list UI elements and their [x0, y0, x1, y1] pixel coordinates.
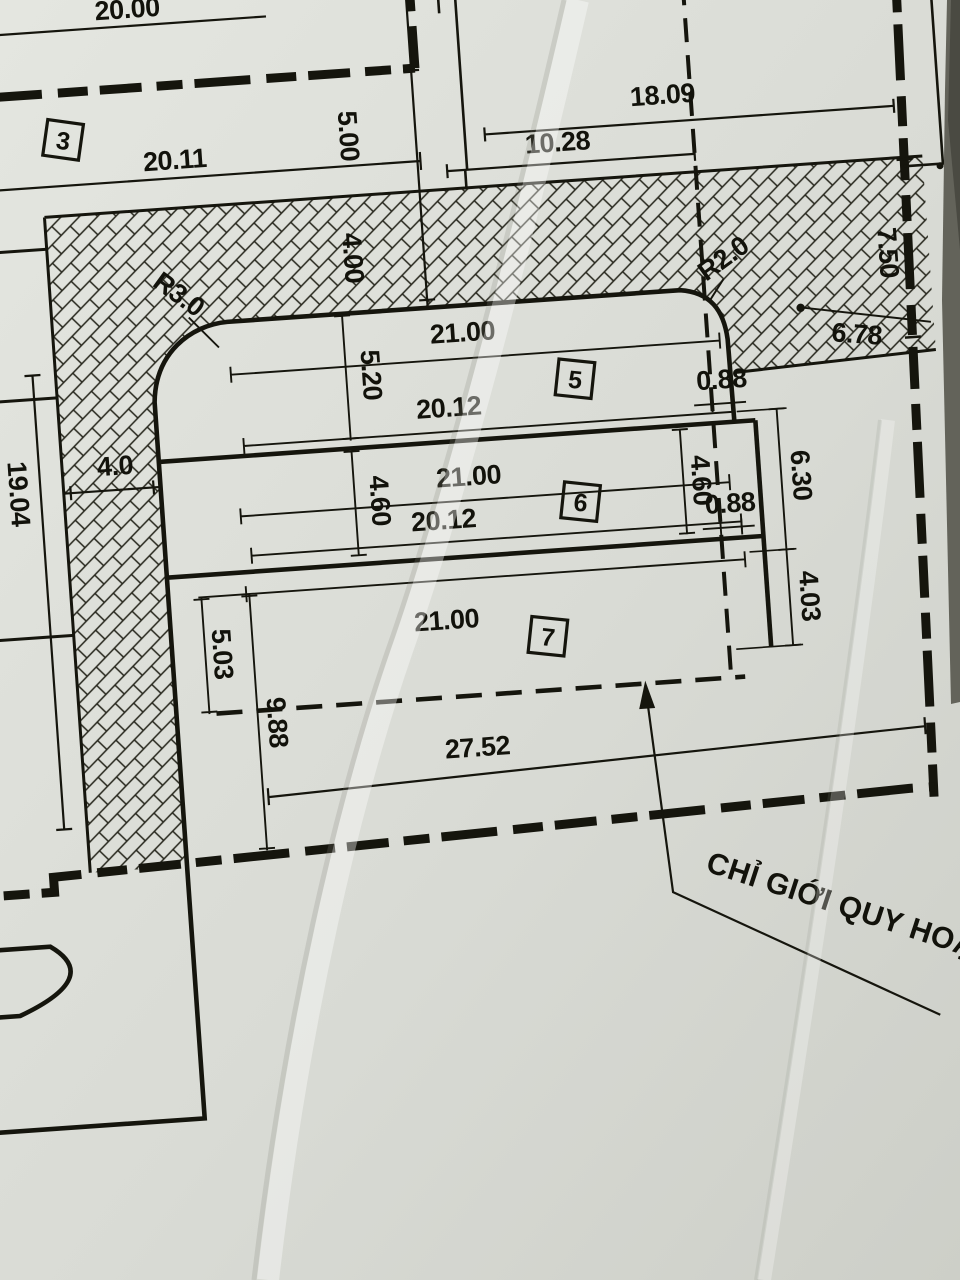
- cadastral-plan-photo: 3 5 6 7 20.00 20.11 5.00 4.00 10.28 18.0…: [0, 0, 960, 1280]
- dim-5-00: 5.00: [332, 110, 365, 163]
- dim-19-04: 19.04: [1, 460, 35, 527]
- dim-5-03: 5.03: [206, 628, 239, 681]
- dim-5-20: 5.20: [355, 349, 388, 402]
- dim-20-00: 20.00: [94, 0, 161, 26]
- dim-9-88: 9.88: [261, 696, 294, 749]
- dim-4-03: 4.03: [793, 570, 826, 623]
- dim-0-88-upper: 0.88: [695, 363, 748, 396]
- dim-4-00: 4.00: [336, 232, 369, 285]
- dim-6-78: 6.78: [831, 317, 884, 350]
- dim-18-09: 18.09: [629, 78, 696, 112]
- plan-drawing: 3 5 6 7 20.00 20.11 5.00 4.00 10.28 18.0…: [0, 0, 960, 1280]
- dim-20-11: 20.11: [142, 143, 208, 177]
- dim-6-30: 6.30: [785, 449, 818, 502]
- dim-4-60-left: 4.60: [363, 474, 396, 527]
- dim-7-50: 7.50: [871, 226, 904, 279]
- dim-4-60-right: 4.60: [685, 454, 718, 507]
- dim-27-52: 27.52: [444, 730, 511, 764]
- dim-4-0: 4.0: [96, 450, 134, 482]
